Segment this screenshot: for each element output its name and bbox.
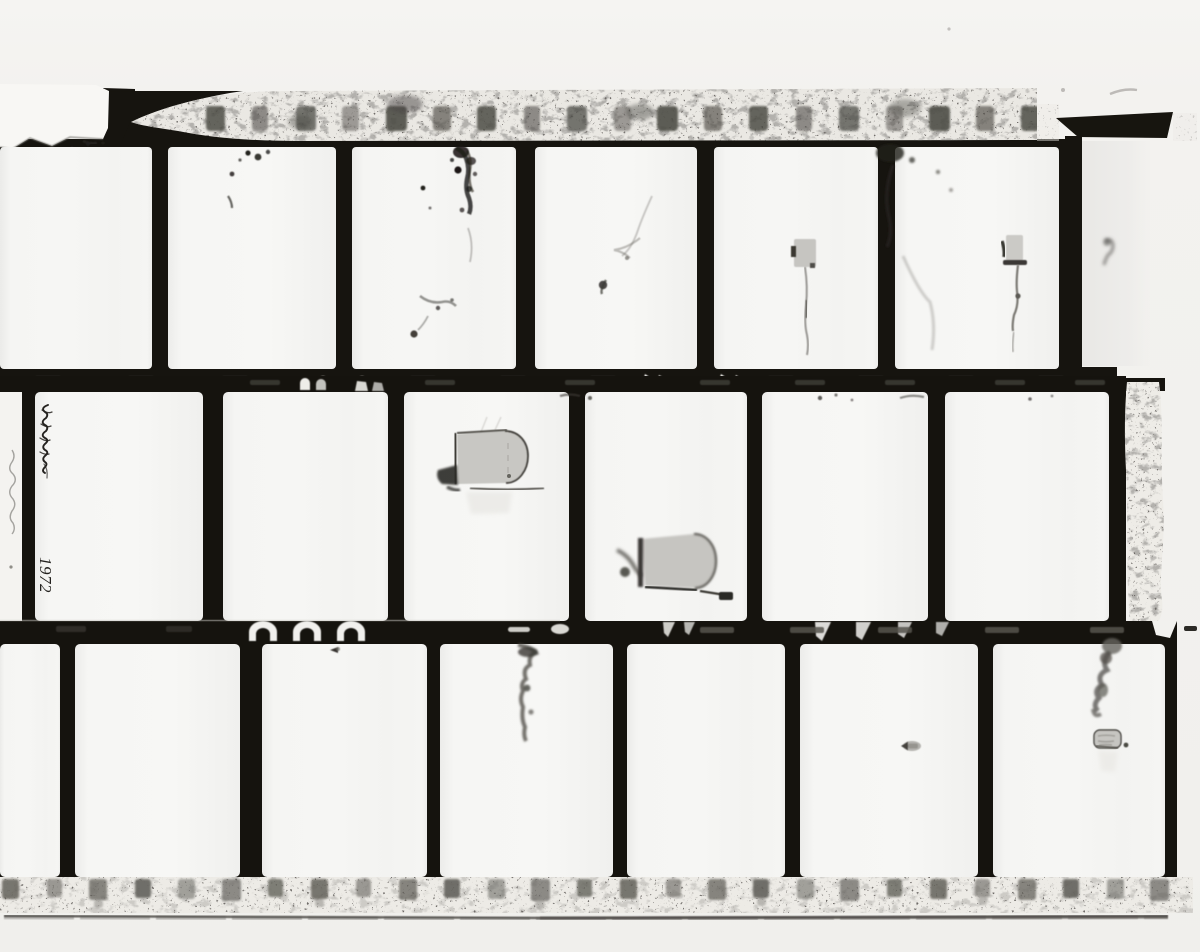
svg-text:1972: 1972	[36, 557, 55, 593]
